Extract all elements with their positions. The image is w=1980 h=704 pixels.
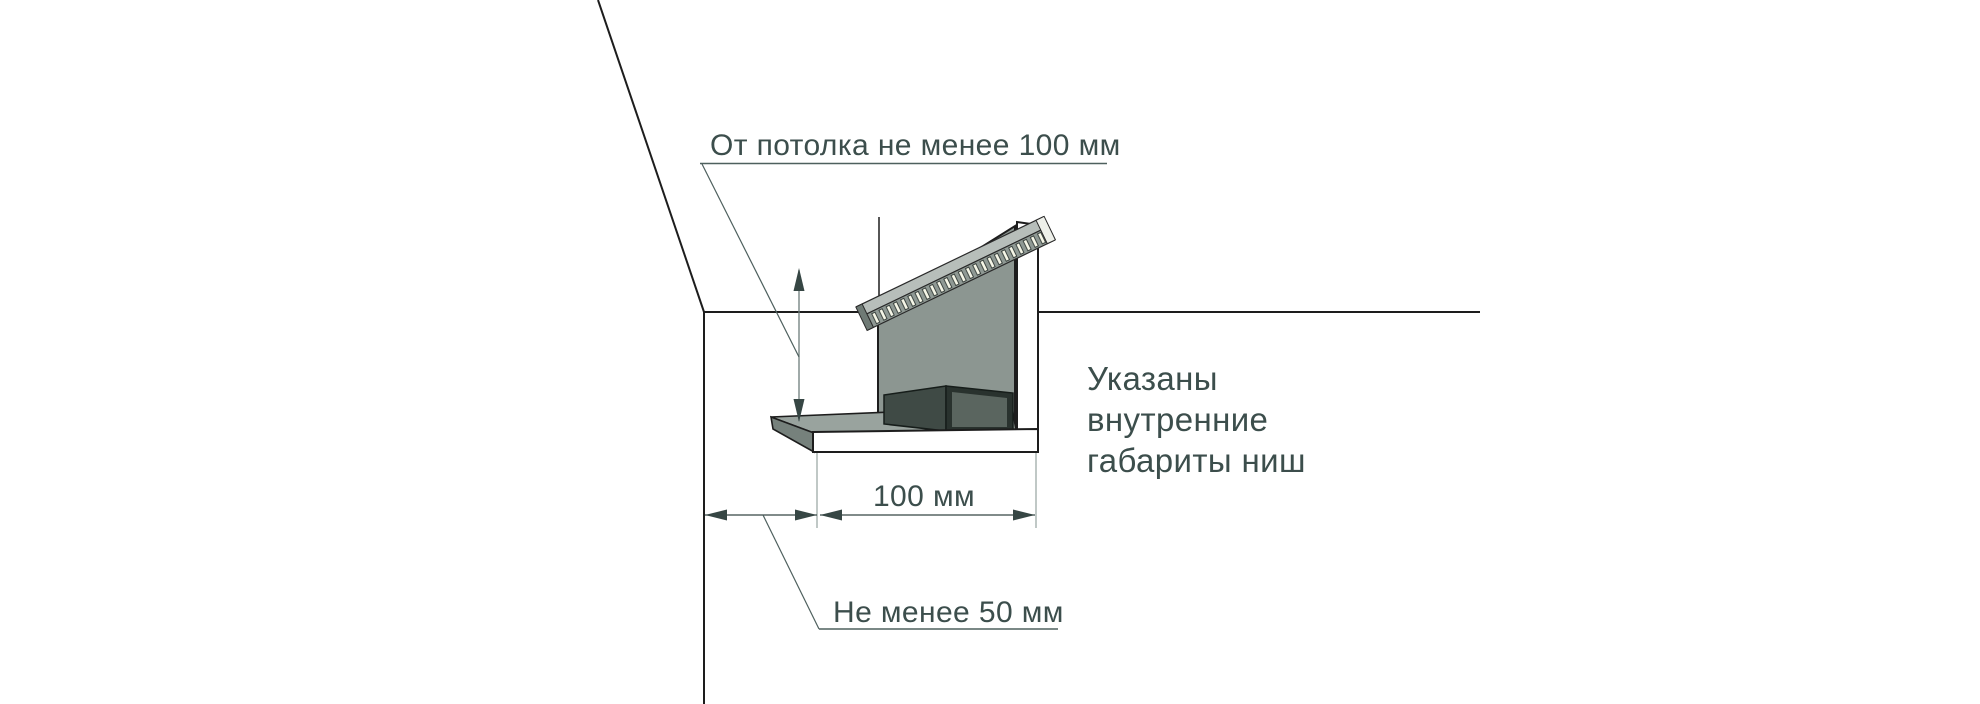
wall-corner-diagonal <box>598 0 704 312</box>
niche-width-arrow-left <box>820 510 842 521</box>
diagram-canvas: От потолка не менее 100 мм 100 мм Не мен… <box>0 0 1980 704</box>
note-line-1: Указаны <box>1087 360 1218 397</box>
wall-clearance-label: Не менее 50 мм <box>833 596 1064 629</box>
ceiling-label-leader <box>702 164 799 357</box>
vertical-dim-arrow-up <box>794 268 805 291</box>
note-line-2: внутренние <box>1087 401 1268 438</box>
niche-clearance-diagram: От потолка не менее 100 мм 100 мм Не мен… <box>0 0 1980 704</box>
niche-bottom-frame <box>813 429 1038 452</box>
wall-gap-arrow-right <box>795 510 817 521</box>
note-line-3: габариты ниш <box>1087 442 1306 479</box>
wall-gap-label-leader <box>763 515 819 629</box>
curtain-box <box>884 386 1013 431</box>
niche-width-arrow-right <box>1013 510 1035 521</box>
ceiling-clearance-label: От потолка не менее 100 мм <box>710 129 1121 162</box>
niche-3d-illustration <box>771 216 1055 452</box>
inner-dimensions-note: Указаны внутренние габариты ниш <box>1087 360 1306 479</box>
curtain-box-right-inset <box>952 392 1007 427</box>
wall-gap-arrow-left <box>705 510 727 521</box>
niche-width-label: 100 мм <box>873 480 975 513</box>
